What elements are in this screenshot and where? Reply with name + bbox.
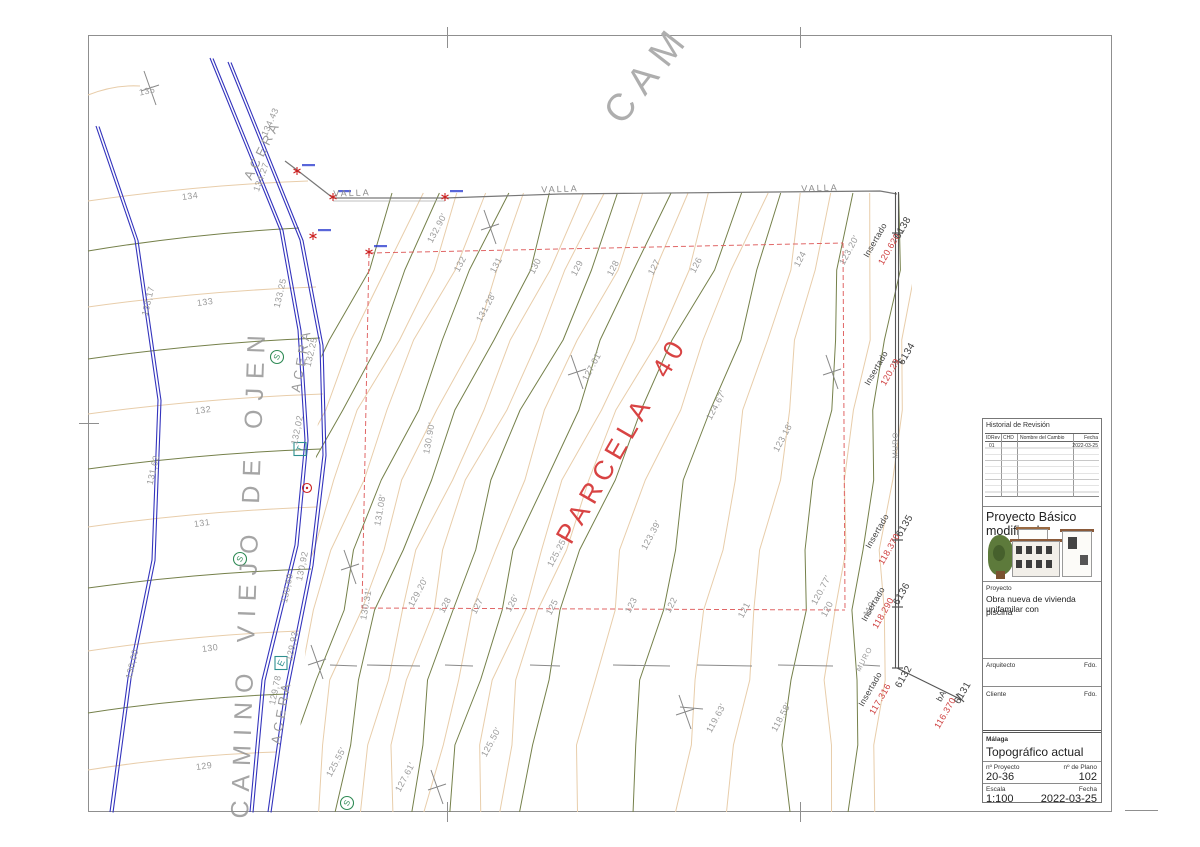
divider <box>983 581 1101 582</box>
divider <box>983 686 1101 687</box>
revision-history-title: Historial de Revisión <box>986 422 1050 429</box>
thumb-tower-window <box>1068 537 1077 549</box>
thumb-volume-tower <box>1062 531 1092 577</box>
station-label-mark <box>450 190 463 192</box>
scale-value: 1:100 <box>986 793 1014 805</box>
divider <box>983 658 1101 659</box>
project-label: Proyecto <box>986 585 1012 592</box>
revision-row-1-id: 01 <box>989 443 995 449</box>
title-block: Historial de Revisión IDRev CHD Nombre d… <box>982 418 1102 803</box>
thumb-windows-row-1 <box>1016 546 1056 554</box>
revision-col-fecha: Fecha <box>1084 435 1098 441</box>
divider-double <box>983 730 1101 733</box>
scale-label: Escala <box>986 786 1006 793</box>
thumb-windows-row-2 <box>1016 560 1056 568</box>
station-label-mark <box>338 190 351 192</box>
architect-label: Arquitecto <box>986 662 1015 669</box>
thumb-tower-window-2 <box>1080 555 1088 565</box>
plan-no-value: 102 <box>1079 771 1097 783</box>
station-label-mark <box>374 245 387 247</box>
architect-signature-label: Fdo. <box>1084 662 1097 669</box>
project-no-label: nº Proyecto <box>986 764 1019 771</box>
station-label-mark <box>318 229 331 231</box>
client-label: Cliente <box>986 691 1006 698</box>
thumb-tree-shade <box>993 545 1005 561</box>
revision-table-rows <box>985 442 1099 497</box>
project-thumbnail-image <box>988 527 1098 579</box>
date-label: Fecha <box>1079 786 1097 793</box>
revision-row-1-date: 2022-03-25 <box>1072 443 1098 449</box>
divider <box>983 761 1101 762</box>
sheet-name: Topográfico actual <box>986 745 1083 759</box>
date-value: 2022-03-25 <box>1041 793 1097 805</box>
plan-no-label: nº de Plano <box>1064 764 1097 771</box>
project-no-value: 20-36 <box>986 771 1014 783</box>
plan-sheet: 135134.43134.27134133,17133133.25132.251… <box>0 0 1200 847</box>
thumb-trunk <box>996 571 1005 579</box>
project-description-2: piscina <box>986 607 1012 617</box>
station-label-mark <box>302 164 315 166</box>
client-signature-label: Fdo. <box>1084 691 1097 698</box>
divider <box>983 783 1101 784</box>
location-label: Málaga <box>986 736 1008 743</box>
revision-table: IDRev CHD Nombre del Cambio Fecha 01 202… <box>985 433 1099 497</box>
divider <box>983 506 1101 507</box>
